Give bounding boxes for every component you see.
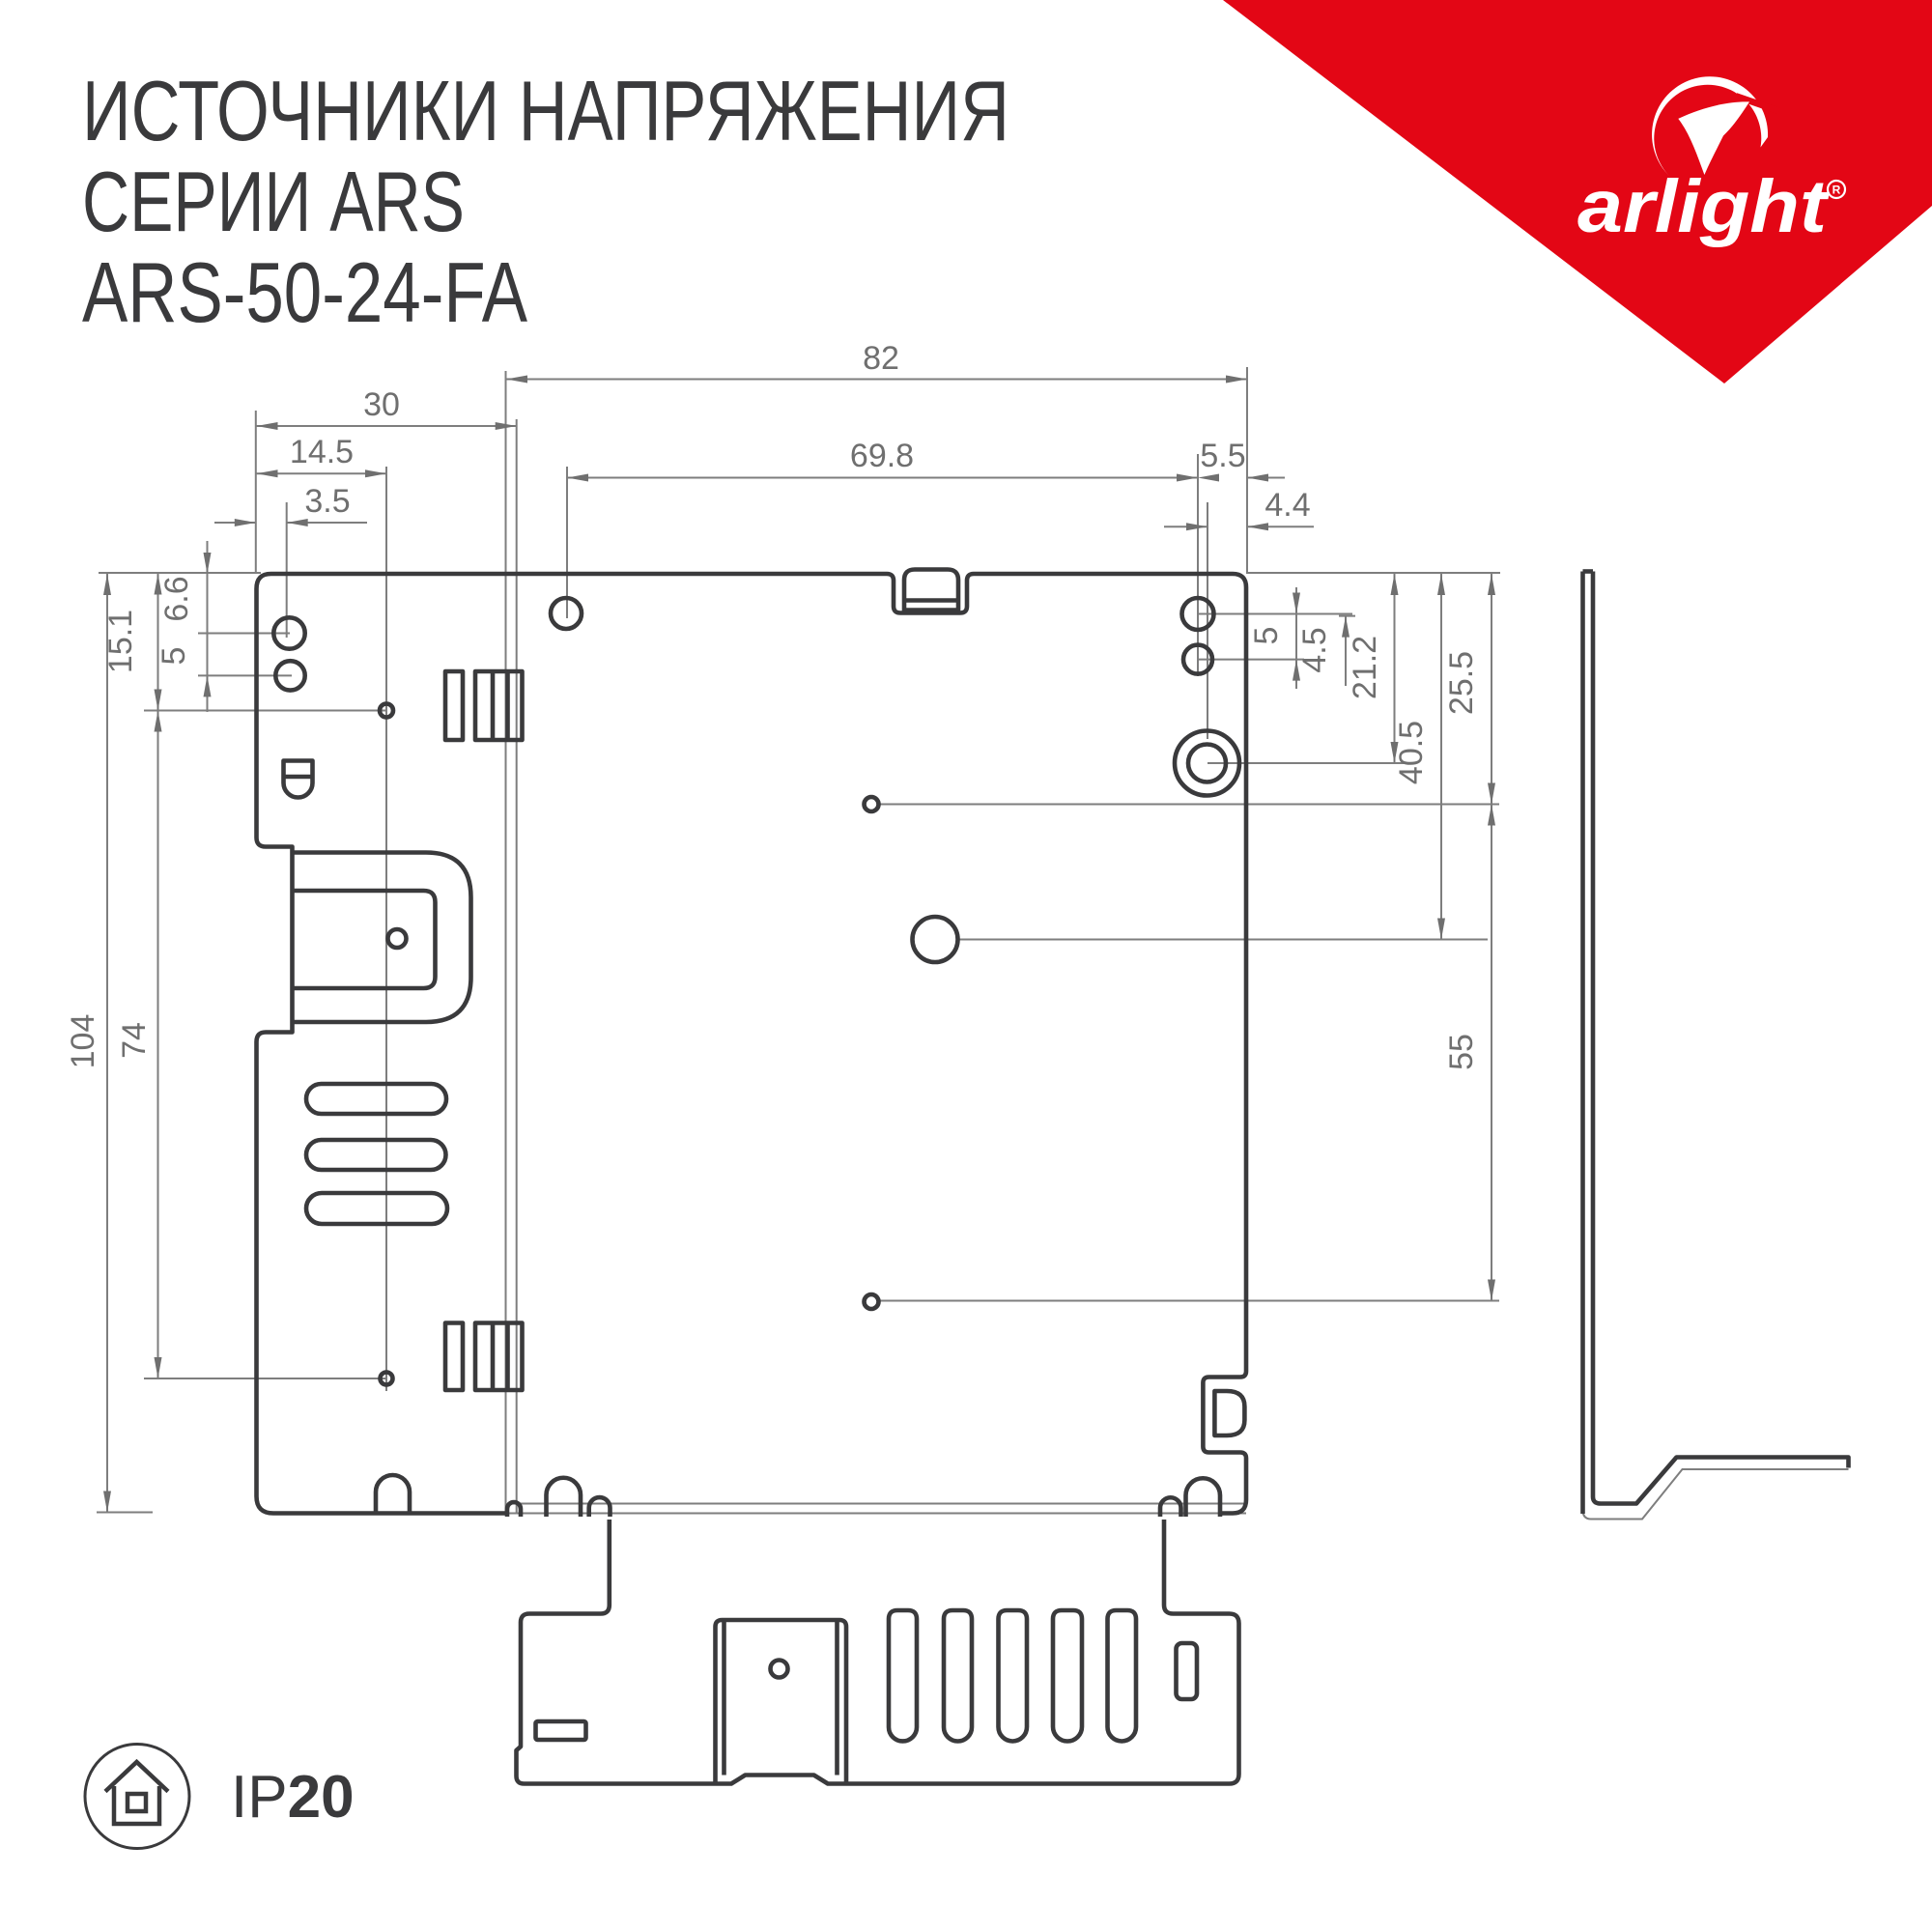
svg-text:55: 55: [1443, 1034, 1480, 1070]
svg-text:ИСТОЧНИКИ НАПРЯЖЕНИЯ: ИСТОЧНИКИ НАПРЯЖЕНИЯ: [82, 63, 1009, 158]
svg-text:IP20: IP20: [231, 1764, 355, 1831]
svg-text:40.5: 40.5: [1393, 721, 1430, 784]
svg-text:arlight: arlight: [1577, 165, 1831, 248]
svg-text:69.8: 69.8: [850, 438, 914, 474]
svg-text:ARS-50-24-FA: ARS-50-24-FA: [82, 244, 527, 340]
svg-text:14.5: 14.5: [290, 434, 354, 470]
svg-text:6.6: 6.6: [158, 576, 195, 621]
svg-text:25.5: 25.5: [1443, 651, 1480, 715]
svg-text:4.4: 4.4: [1264, 487, 1310, 524]
svg-text:R: R: [1833, 184, 1841, 197]
svg-text:74: 74: [116, 1022, 153, 1059]
svg-text:СЕРИИ ARS: СЕРИИ ARS: [82, 154, 465, 249]
svg-text:5.5: 5.5: [1200, 438, 1245, 474]
svg-text:21.2: 21.2: [1347, 636, 1383, 699]
svg-text:30: 30: [363, 386, 400, 423]
svg-text:5: 5: [1248, 627, 1285, 645]
svg-text:104: 104: [65, 1014, 101, 1069]
svg-text:3.5: 3.5: [304, 483, 350, 520]
svg-text:82: 82: [863, 340, 899, 377]
svg-text:5: 5: [156, 647, 192, 666]
svg-text:4.5: 4.5: [1296, 627, 1333, 672]
svg-text:15.1: 15.1: [102, 610, 139, 673]
